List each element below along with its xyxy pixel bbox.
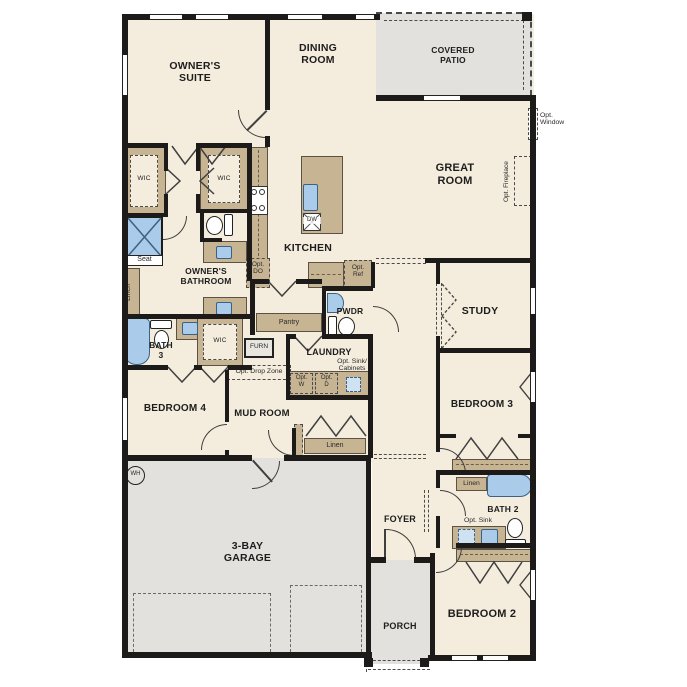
- opt-window-label: Opt. Window: [540, 112, 576, 127]
- linen-bath2-label: Linen: [457, 480, 486, 487]
- covered-patio-label: COVERED PATIO: [423, 45, 483, 65]
- opt-do-label: Opt. DO: [252, 261, 264, 275]
- furn-label: FURN: [250, 343, 268, 350]
- wall: [164, 147, 168, 171]
- window: [196, 14, 228, 20]
- garage-door-2bay-dashed: [133, 593, 271, 652]
- floor-plan: Seat DW WH Opt. DO Opt. Ref Opt. W Opt. …: [0, 0, 687, 687]
- porch-floor: [370, 560, 430, 664]
- bed2-closet-line: [460, 554, 528, 556]
- opt-ref-label-box: Opt. Ref: [344, 264, 372, 278]
- wall: [456, 543, 534, 548]
- wall: [196, 209, 251, 213]
- wall: [265, 14, 270, 110]
- garage-door-1bay-dashed: [290, 585, 362, 652]
- wall: [368, 338, 373, 398]
- window: [122, 398, 128, 440]
- opt-fireplace-label: Opt. Fireplace: [503, 156, 514, 208]
- wall: [425, 258, 534, 263]
- wall: [122, 314, 252, 319]
- great-room-label: GREAT ROOM: [425, 162, 485, 188]
- island-sink-icon: [303, 184, 318, 211]
- window: [483, 655, 508, 661]
- wall: [228, 365, 252, 370]
- pwdr-toilet-tank-icon: [328, 316, 337, 336]
- wall: [371, 262, 375, 288]
- wall: [436, 543, 440, 548]
- wall: [196, 143, 252, 148]
- wall: [200, 213, 204, 241]
- wall: [286, 334, 290, 398]
- dining-room-label: DINING ROOM: [288, 42, 348, 67]
- wall: [225, 370, 229, 422]
- wall: [518, 434, 534, 438]
- bath3-label: BATH 3: [142, 340, 180, 360]
- wall: [436, 348, 534, 353]
- porch-label: PORCH: [376, 621, 424, 632]
- wall: [296, 279, 322, 284]
- owners-suite-label: OWNER'S SUITE: [150, 60, 240, 85]
- pwdr-label: PWDR: [330, 306, 370, 316]
- wall: [247, 147, 252, 281]
- wall: [200, 238, 222, 242]
- wall: [284, 455, 370, 461]
- wh-label-box: WH: [126, 471, 145, 478]
- wall: [265, 136, 270, 147]
- wic-left-label: WIC: [130, 175, 158, 183]
- furn-label-box: FURN: [244, 343, 274, 350]
- window: [452, 655, 477, 661]
- mud-room-label: MUD ROOM: [222, 408, 302, 419]
- opt-w-label-box: Opt. W: [290, 375, 313, 388]
- wic-bed4-door-icon: [200, 367, 228, 383]
- wall: [250, 279, 255, 335]
- dw-label-box: DW: [303, 217, 321, 224]
- wall: [292, 428, 296, 456]
- kitchen-counter-south-line: [311, 274, 341, 276]
- window: [288, 14, 322, 20]
- shower-x-icon: [126, 216, 163, 258]
- garage-label: 3-BAY GARAGE: [205, 540, 290, 565]
- bed3-closet-bifold-icon: [456, 436, 518, 459]
- bath3-sink-icon: [182, 322, 198, 335]
- wh-label: WH: [131, 471, 141, 477]
- window: [530, 372, 536, 402]
- opt-sink-bath2-label: Opt. Sink: [452, 517, 504, 524]
- bed3-closet-line: [456, 464, 528, 466]
- front-door-leaf: [384, 529, 386, 559]
- wall: [436, 262, 440, 284]
- linen-hall-label: Linen: [306, 442, 364, 450]
- bedroom3-label: BEDROOM 3: [436, 399, 528, 411]
- laundry-opt-sink-icon: [346, 377, 361, 392]
- kitchen-label: KITCHEN: [276, 242, 340, 254]
- study-label: STUDY: [452, 305, 508, 317]
- dw-label: DW: [307, 217, 317, 223]
- wall: [322, 286, 373, 291]
- great-room-case-opening: [376, 258, 426, 264]
- wall: [368, 395, 373, 458]
- window: [122, 55, 128, 95]
- owners-bathroom-label: OWNER'S BATHROOM: [164, 266, 248, 286]
- opt-d-label-box: Opt. D: [315, 375, 338, 388]
- patio-corner-post: [522, 12, 532, 21]
- wall: [194, 365, 202, 370]
- foyer-label: FOYER: [378, 514, 422, 525]
- bed2-closet-bifold-icon: [466, 562, 522, 585]
- wall: [122, 455, 252, 461]
- window: [424, 95, 460, 101]
- foyer-side-opening: [424, 490, 429, 532]
- wall: [436, 470, 534, 475]
- wall: [430, 553, 435, 661]
- wall: [122, 365, 168, 370]
- seat-strip: Seat: [126, 255, 163, 266]
- wic-mid-label: WIC: [209, 175, 239, 183]
- bath2-label: BATH 2: [478, 504, 528, 514]
- laundry-label: LAUNDRY: [298, 347, 360, 358]
- wall: [122, 652, 372, 658]
- seat-label: Seat: [137, 256, 151, 263]
- bath3-door-icon: [168, 367, 196, 383]
- hall-foyer-opening: [374, 454, 426, 459]
- porch-post-left: [364, 658, 373, 667]
- hall-closet-bifold-icon: [306, 414, 366, 436]
- bath2-tub-icon: [487, 474, 532, 497]
- wall: [122, 143, 168, 148]
- wall: [255, 279, 269, 284]
- wall: [196, 147, 200, 171]
- owners-sink1-icon: [216, 246, 232, 259]
- wall: [322, 334, 373, 339]
- wall: [428, 655, 536, 661]
- wall: [286, 395, 372, 400]
- bath3-toilet-tank-icon: [150, 320, 172, 329]
- wall: [122, 213, 168, 217]
- pantry-label: Pantry: [258, 319, 320, 327]
- window: [356, 14, 374, 20]
- opt-d-label: Opt. D: [321, 375, 332, 388]
- owners-toilet-bowl-icon: [206, 216, 223, 235]
- window: [150, 14, 182, 20]
- opt-ref-label: Opt. Ref: [352, 264, 364, 278]
- pantry-door-icon: [268, 281, 296, 297]
- window: [530, 570, 536, 600]
- owners-toilet-tank-icon: [224, 214, 233, 236]
- opt-w-label: Opt. W: [296, 375, 307, 388]
- wall: [225, 450, 229, 455]
- wall: [368, 557, 386, 563]
- wic-left-door-icon: [166, 168, 182, 194]
- bedroom4-label: BEDROOM 4: [130, 403, 220, 415]
- window: [530, 288, 536, 314]
- wall: [122, 458, 128, 658]
- bedroom2-label: BEDROOM 2: [430, 608, 534, 621]
- wall: [436, 474, 440, 488]
- porch-edge-dashed-2: [368, 669, 430, 671]
- bath2-toilet-bowl-icon: [507, 518, 523, 538]
- wall: [322, 286, 326, 338]
- wall: [440, 434, 456, 438]
- wic-bed4-label: WIC: [206, 337, 234, 345]
